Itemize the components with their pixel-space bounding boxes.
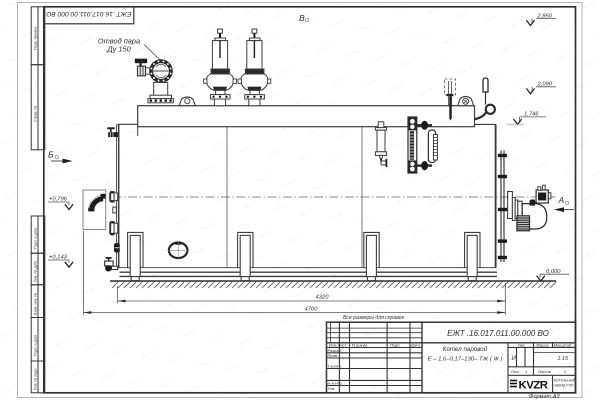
svg-text:И: И: [512, 356, 517, 362]
svg-text:Б: Б: [48, 150, 54, 160]
svg-text:Котел паровой: Котел паровой: [443, 346, 488, 353]
svg-text:Перв. примен.: Перв. примен.: [33, 26, 37, 50]
svg-text:Справ. №: Справ. №: [33, 106, 37, 122]
svg-text:Листов: Листов: [538, 369, 551, 374]
svg-text:KVZR: KVZR: [519, 380, 548, 392]
svg-text:Все размеры для справок: Все размеры для справок: [343, 315, 405, 321]
svg-text:N докум.: N докум.: [352, 343, 368, 348]
svg-text:Подп.: Подп.: [390, 343, 401, 348]
svg-text:Подп. и дата: Подп. и дата: [33, 228, 37, 249]
svg-text:ЕЖТ .16.017.011.00.000 ВО: ЕЖТ .16.017.011.00.000 ВО: [447, 329, 549, 338]
svg-text:4700: 4700: [305, 306, 319, 312]
svg-text:Взам. инв. №: Взам. инв. №: [33, 293, 37, 315]
svg-text:Масса: Масса: [537, 342, 550, 347]
svg-text:Масштаб: Масштаб: [554, 342, 572, 347]
svg-text:Лит.: Лит.: [518, 342, 525, 347]
svg-text:1:15: 1:15: [558, 356, 569, 362]
svg-text:Инв. № дубл.: Инв. № дубл.: [33, 260, 37, 282]
svg-text:В: В: [299, 13, 305, 23]
svg-text:ЗАВОД РЭП: ЗАВОД РЭП: [554, 384, 574, 388]
svg-text:4320: 4320: [316, 295, 330, 301]
svg-text:ЕЖТ .16.017.011.00.000 ВО: ЕЖТ .16.017.011.00.000 ВО: [45, 10, 131, 17]
svg-text:Пров.: Пров.: [328, 353, 339, 358]
svg-text:Подп. и дата: Подп. и дата: [33, 335, 37, 356]
svg-text:А: А: [558, 195, 565, 205]
svg-text:Формат А3: Формат А3: [529, 394, 560, 400]
svg-text:Т.контр.: Т.контр.: [328, 364, 343, 369]
svg-text:Инв. № подл.: Инв. № подл.: [33, 368, 37, 390]
svg-text:Е – 1,6–0,17–130– ТЖ ( Ж ): Е – 1,6–0,17–130– ТЖ ( Ж ): [428, 356, 503, 362]
svg-text:Лист: Лист: [511, 369, 520, 374]
svg-text:КОТЕЛЬНЫЙ: КОТЕЛЬНЫЙ: [554, 379, 576, 383]
svg-text:Ду 150: Ду 150: [106, 45, 131, 54]
svg-text:Дата: Дата: [411, 343, 421, 348]
svg-text:Утв.: Утв.: [328, 386, 336, 391]
